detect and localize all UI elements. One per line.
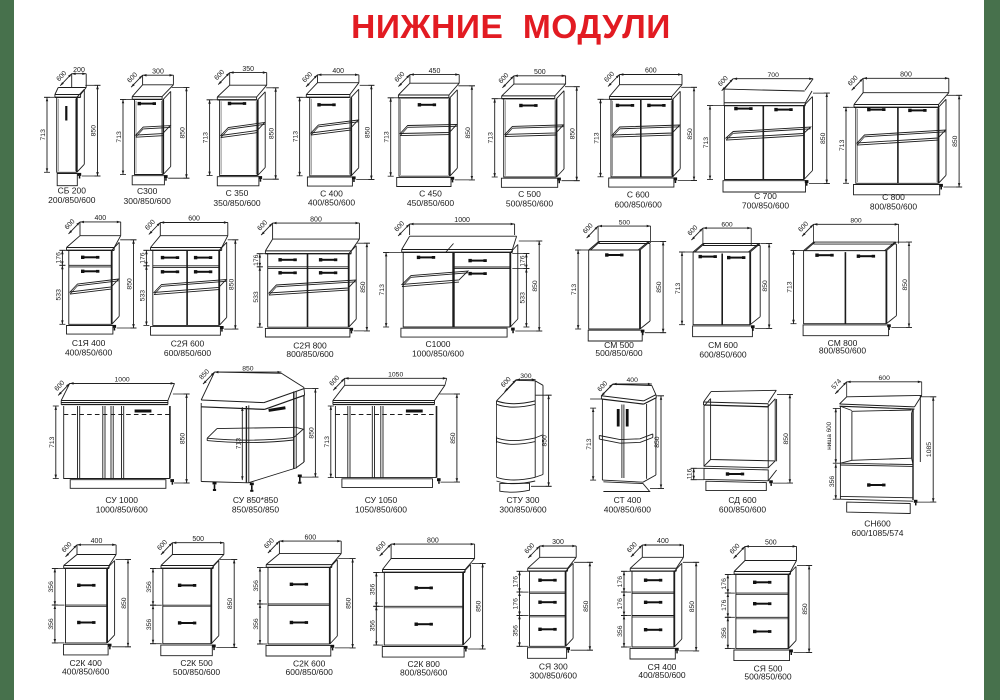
svg-text:С2Я 600: С2Я 600 bbox=[171, 339, 205, 349]
svg-text:С1000: С1000 bbox=[425, 339, 450, 349]
svg-text:700/850/600: 700/850/600 bbox=[742, 201, 790, 211]
svg-text:400: 400 bbox=[627, 377, 639, 384]
svg-text:300/850/600: 300/850/600 bbox=[499, 505, 547, 515]
svg-text:850: 850 bbox=[656, 281, 663, 293]
svg-text:713: 713 bbox=[586, 438, 593, 450]
svg-text:850: 850 bbox=[820, 132, 827, 144]
svg-text:ниша 600: ниша 600 bbox=[826, 421, 833, 449]
svg-text:850: 850 bbox=[127, 278, 134, 290]
svg-text:300: 300 bbox=[152, 68, 164, 75]
svg-text:800/850/600: 800/850/600 bbox=[819, 346, 867, 356]
svg-text:176: 176 bbox=[617, 576, 624, 588]
svg-text:СУ 1050: СУ 1050 bbox=[365, 495, 398, 505]
svg-text:176: 176 bbox=[253, 254, 260, 266]
svg-text:СУ 850*850: СУ 850*850 bbox=[233, 495, 279, 505]
svg-text:300/850/600: 300/850/600 bbox=[124, 196, 172, 206]
svg-text:600: 600 bbox=[304, 534, 316, 541]
svg-text:1000/850/600: 1000/850/600 bbox=[96, 505, 148, 515]
svg-text:176: 176 bbox=[55, 252, 62, 264]
svg-text:713: 713 bbox=[324, 436, 331, 448]
svg-text:С 350: С 350 bbox=[226, 188, 249, 198]
svg-text:713: 713 bbox=[594, 132, 601, 144]
svg-text:713: 713 bbox=[379, 284, 386, 296]
svg-text:СН600: СН600 bbox=[864, 519, 891, 529]
svg-text:713: 713 bbox=[116, 131, 123, 143]
svg-text:300: 300 bbox=[552, 539, 564, 546]
svg-text:800: 800 bbox=[900, 72, 912, 79]
svg-text:850: 850 bbox=[360, 281, 367, 293]
svg-text:600: 600 bbox=[721, 221, 733, 228]
svg-text:600/850/600: 600/850/600 bbox=[286, 667, 334, 677]
svg-text:400: 400 bbox=[94, 215, 106, 222]
svg-text:1085: 1085 bbox=[926, 442, 933, 457]
svg-text:850: 850 bbox=[689, 601, 696, 613]
svg-text:533: 533 bbox=[519, 292, 526, 304]
svg-text:533: 533 bbox=[253, 291, 260, 303]
svg-text:НИЖНИЕ МОДУЛИ: НИЖНИЕ МОДУЛИ bbox=[351, 9, 671, 46]
svg-text:356: 356 bbox=[617, 625, 624, 637]
svg-text:600: 600 bbox=[188, 216, 200, 223]
svg-text:500/850/600: 500/850/600 bbox=[595, 348, 643, 358]
svg-text:СБ 200: СБ 200 bbox=[58, 186, 87, 196]
svg-text:533: 533 bbox=[139, 290, 146, 302]
svg-text:400: 400 bbox=[657, 538, 669, 545]
svg-text:600: 600 bbox=[645, 68, 657, 75]
svg-text:713: 713 bbox=[235, 438, 242, 450]
svg-text:700: 700 bbox=[768, 72, 780, 79]
svg-text:350: 350 bbox=[242, 66, 254, 73]
svg-text:800: 800 bbox=[427, 537, 439, 544]
svg-text:356: 356 bbox=[146, 581, 153, 593]
svg-text:713: 713 bbox=[675, 283, 682, 295]
svg-text:400/850/600: 400/850/600 bbox=[62, 667, 110, 677]
svg-text:400/850/600: 400/850/600 bbox=[308, 197, 356, 207]
svg-text:713: 713 bbox=[293, 131, 300, 143]
svg-text:600/850/600: 600/850/600 bbox=[164, 348, 212, 358]
svg-text:713: 713 bbox=[40, 129, 47, 141]
svg-text:850: 850 bbox=[228, 279, 235, 291]
svg-text:600/850/600: 600/850/600 bbox=[615, 200, 663, 210]
svg-text:850: 850 bbox=[364, 127, 371, 139]
svg-text:850: 850 bbox=[570, 128, 577, 140]
svg-text:850: 850 bbox=[308, 427, 315, 439]
svg-text:850: 850 bbox=[542, 435, 549, 447]
svg-text:176: 176 bbox=[519, 255, 526, 267]
svg-text:500: 500 bbox=[619, 219, 631, 226]
svg-text:800: 800 bbox=[310, 216, 322, 223]
svg-text:850: 850 bbox=[952, 135, 959, 147]
svg-text:200: 200 bbox=[73, 67, 85, 74]
svg-text:176: 176 bbox=[721, 599, 728, 611]
svg-text:300: 300 bbox=[520, 373, 532, 380]
svg-text:850: 850 bbox=[465, 127, 472, 139]
svg-text:116: 116 bbox=[687, 468, 694, 479]
svg-text:713: 713 bbox=[703, 137, 710, 149]
svg-text:850/850/850: 850/850/850 bbox=[232, 505, 280, 515]
svg-text:СУ 1000: СУ 1000 bbox=[105, 495, 138, 505]
svg-text:450: 450 bbox=[429, 68, 441, 75]
svg-text:350/850/600: 350/850/600 bbox=[213, 198, 261, 208]
svg-text:850: 850 bbox=[91, 125, 98, 137]
svg-text:356: 356 bbox=[48, 581, 55, 593]
svg-text:356: 356 bbox=[48, 618, 55, 630]
svg-text:850: 850 bbox=[180, 433, 187, 445]
svg-text:850: 850 bbox=[583, 600, 590, 612]
svg-text:400/850/600: 400/850/600 bbox=[638, 670, 686, 680]
svg-text:356: 356 bbox=[369, 584, 376, 596]
svg-text:200/850/600: 200/850/600 bbox=[48, 195, 96, 205]
svg-text:356: 356 bbox=[513, 625, 520, 637]
svg-text:356: 356 bbox=[253, 580, 260, 592]
svg-text:450/850/600: 450/850/600 bbox=[407, 198, 455, 208]
svg-text:850: 850 bbox=[227, 598, 234, 610]
svg-text:850: 850 bbox=[269, 128, 276, 140]
svg-text:800: 800 bbox=[850, 218, 862, 225]
svg-text:1000: 1000 bbox=[454, 217, 470, 224]
svg-text:850: 850 bbox=[532, 280, 539, 292]
svg-text:713: 713 bbox=[384, 131, 391, 143]
svg-text:600/850/600: 600/850/600 bbox=[719, 505, 767, 515]
svg-text:713: 713 bbox=[787, 281, 794, 293]
svg-text:850: 850 bbox=[654, 436, 661, 448]
svg-text:713: 713 bbox=[49, 436, 56, 448]
svg-text:800/850/600: 800/850/600 bbox=[400, 667, 448, 677]
svg-text:850: 850 bbox=[346, 597, 353, 609]
svg-text:176: 176 bbox=[139, 252, 146, 264]
svg-text:850: 850 bbox=[902, 279, 909, 291]
svg-text:533: 533 bbox=[55, 289, 62, 301]
svg-text:176: 176 bbox=[617, 598, 624, 610]
svg-text:800/850/600: 800/850/600 bbox=[870, 201, 918, 211]
svg-text:500/850/600: 500/850/600 bbox=[744, 671, 792, 681]
svg-text:850: 850 bbox=[121, 597, 128, 609]
svg-text:850: 850 bbox=[762, 280, 769, 292]
svg-text:500/850/600: 500/850/600 bbox=[506, 199, 554, 209]
svg-text:713: 713 bbox=[488, 132, 495, 144]
svg-text:176: 176 bbox=[721, 578, 728, 590]
svg-text:850: 850 bbox=[179, 127, 186, 139]
svg-text:С 700: С 700 bbox=[754, 191, 777, 201]
svg-text:600/850/600: 600/850/600 bbox=[699, 349, 747, 359]
svg-text:400/850/600: 400/850/600 bbox=[604, 505, 652, 515]
svg-text:1050/850/600: 1050/850/600 bbox=[355, 505, 407, 515]
svg-text:500: 500 bbox=[192, 536, 204, 543]
svg-text:356: 356 bbox=[369, 620, 376, 632]
svg-text:356: 356 bbox=[253, 618, 260, 630]
svg-text:850: 850 bbox=[476, 600, 483, 612]
svg-text:400: 400 bbox=[91, 538, 103, 545]
svg-text:500: 500 bbox=[765, 540, 777, 547]
svg-text:850: 850 bbox=[783, 433, 790, 445]
svg-text:850: 850 bbox=[242, 365, 254, 372]
svg-text:С300: С300 bbox=[137, 186, 158, 196]
svg-text:С 500: С 500 bbox=[518, 189, 541, 199]
svg-text:300/850/600: 300/850/600 bbox=[530, 670, 578, 680]
svg-text:713: 713 bbox=[839, 139, 846, 151]
svg-text:850: 850 bbox=[687, 128, 694, 140]
svg-text:400: 400 bbox=[332, 68, 344, 75]
svg-text:713: 713 bbox=[203, 132, 210, 144]
svg-text:С 600: С 600 bbox=[627, 190, 650, 200]
svg-text:176: 176 bbox=[513, 598, 520, 610]
svg-text:СТ 400: СТ 400 bbox=[614, 495, 642, 505]
svg-text:1050: 1050 bbox=[388, 372, 403, 379]
svg-text:СД 600: СД 600 bbox=[728, 495, 757, 505]
svg-text:356: 356 bbox=[721, 627, 728, 639]
svg-text:400/850/600: 400/850/600 bbox=[65, 348, 113, 358]
svg-text:500: 500 bbox=[534, 69, 546, 76]
svg-text:800/850/600: 800/850/600 bbox=[286, 349, 334, 359]
svg-text:СТУ 300: СТУ 300 bbox=[507, 495, 540, 505]
svg-text:1000/850/600: 1000/850/600 bbox=[412, 349, 464, 359]
svg-text:850: 850 bbox=[802, 603, 809, 615]
svg-text:1000: 1000 bbox=[115, 377, 130, 384]
svg-text:500/850/600: 500/850/600 bbox=[173, 667, 221, 677]
svg-text:600/1085/574: 600/1085/574 bbox=[852, 528, 904, 538]
svg-text:600: 600 bbox=[879, 375, 891, 382]
svg-text:850: 850 bbox=[450, 432, 457, 444]
svg-text:713: 713 bbox=[571, 284, 578, 296]
svg-text:356: 356 bbox=[829, 476, 836, 488]
svg-text:356: 356 bbox=[146, 619, 153, 631]
svg-text:176: 176 bbox=[513, 576, 520, 588]
